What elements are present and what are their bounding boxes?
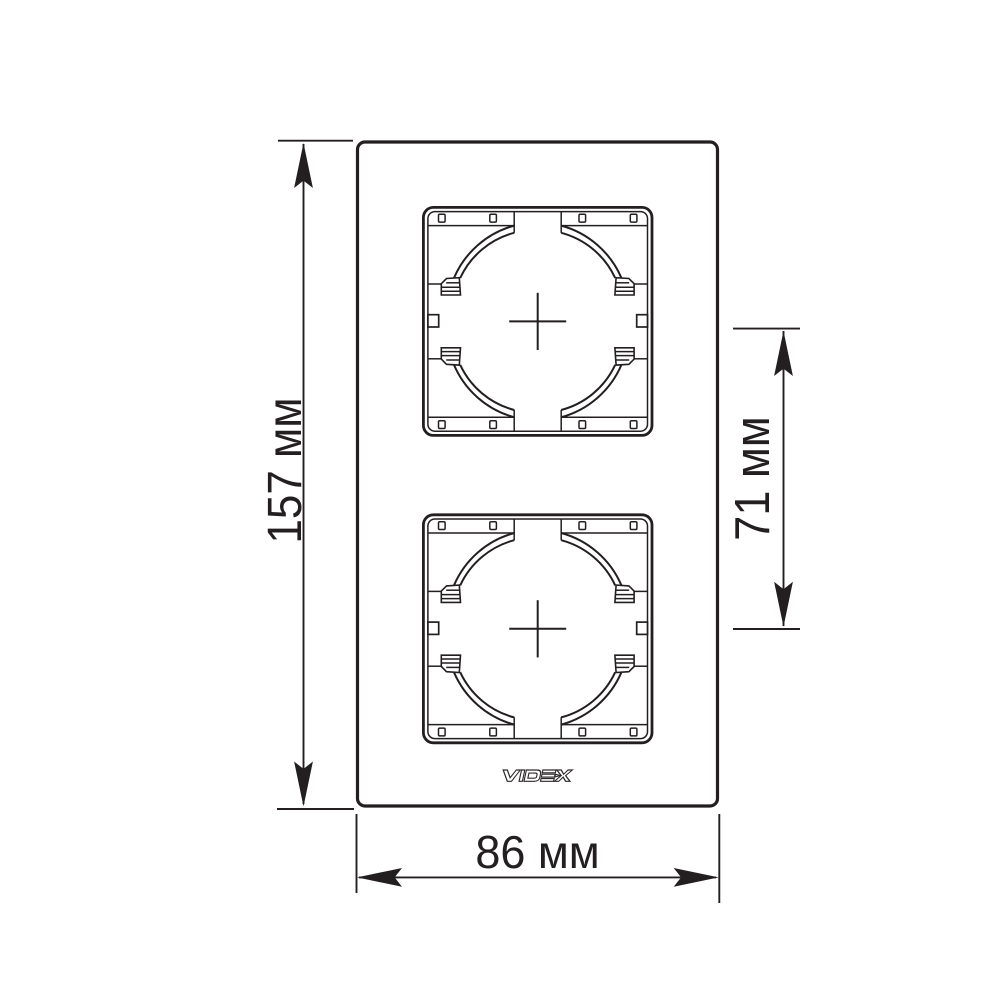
svg-text:157 мм: 157 мм [257, 397, 311, 543]
svg-text:71 мм: 71 мм [725, 416, 780, 540]
svg-text:86 мм: 86 мм [475, 826, 599, 878]
